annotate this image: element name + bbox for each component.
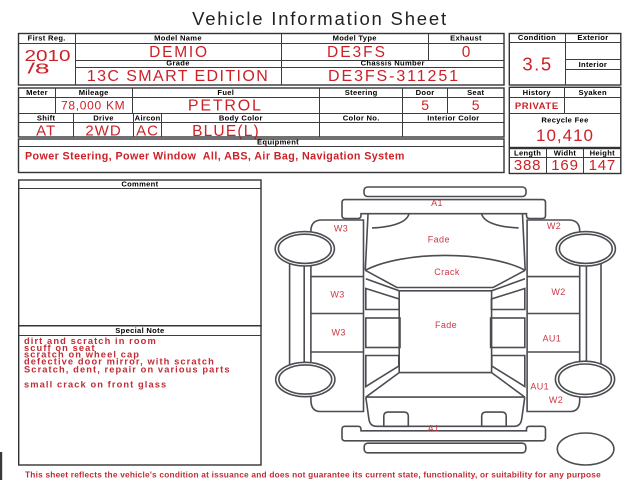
svg-text:169: 169 — [551, 157, 578, 174]
svg-text:W3: W3 — [330, 289, 344, 299]
svg-text:Drive: Drive — [93, 113, 114, 122]
svg-text:Widht: Widht — [554, 148, 577, 157]
svg-text:W2: W2 — [547, 221, 561, 231]
svg-text:AU1: AU1 — [542, 333, 561, 343]
svg-text:Equipment: Equipment — [257, 137, 299, 146]
svg-text:Exhaust: Exhaust — [450, 34, 482, 43]
svg-text:Grade: Grade — [166, 59, 189, 68]
svg-text:Scratch, dent, repair on vario: Scratch, dent, repair on various parts — [24, 364, 231, 374]
svg-text:3.5: 3.5 — [522, 54, 552, 75]
svg-text:A1: A1 — [431, 198, 443, 208]
svg-text:small crack on front glass: small crack on front glass — [24, 380, 167, 390]
svg-text:Comment: Comment — [121, 180, 158, 189]
svg-text:Model Type: Model Type — [333, 34, 377, 43]
svg-text:Door: Door — [416, 88, 435, 97]
svg-text:Crack: Crack — [434, 267, 460, 277]
svg-text:Meter: Meter — [26, 88, 48, 97]
svg-text:Height: Height — [590, 148, 616, 157]
svg-text:Length: Length — [514, 148, 541, 157]
svg-text:Color No.: Color No. — [343, 113, 380, 122]
svg-text:Interior: Interior — [579, 60, 608, 69]
svg-text:AC: AC — [136, 123, 159, 140]
svg-text:Special Note: Special Note — [115, 326, 164, 335]
svg-text:/8: /8 — [28, 62, 50, 78]
svg-text:A1: A1 — [428, 424, 440, 434]
svg-text:Seat: Seat — [467, 88, 484, 97]
svg-text:First Reg.: First Reg. — [28, 34, 66, 43]
svg-text:Condition: Condition — [518, 33, 556, 42]
svg-text:388: 388 — [514, 157, 541, 174]
svg-text:W2: W2 — [549, 395, 563, 405]
svg-text:Mileage: Mileage — [79, 88, 109, 97]
svg-text:Interior Color: Interior Color — [427, 113, 479, 122]
svg-text:Fade: Fade — [428, 235, 450, 245]
svg-text:Vehicle Information Sheet: Vehicle Information Sheet — [192, 8, 448, 29]
svg-text:AT: AT — [36, 123, 56, 140]
svg-text:0: 0 — [462, 44, 471, 61]
svg-text:Steering: Steering — [345, 88, 378, 97]
svg-text:Model Name: Model Name — [154, 34, 202, 43]
svg-text:DE3FS-311251: DE3FS-311251 — [328, 68, 460, 85]
svg-text:This sheet reflects the vehicl: This sheet reflects the vehicle's condit… — [25, 470, 601, 480]
svg-text:PRIVATE: PRIVATE — [515, 101, 559, 112]
svg-text:Recycle Fee: Recycle Fee — [541, 116, 588, 125]
svg-text:2WD: 2WD — [85, 123, 121, 140]
svg-text:13C SMART EDITION: 13C SMART EDITION — [87, 68, 269, 85]
svg-text:Fuel: Fuel — [217, 88, 234, 97]
svg-text:Power Steering, Power Window: Power Steering, Power Window All, ABS, A… — [25, 151, 405, 163]
svg-text:Exterior: Exterior — [577, 33, 608, 42]
svg-text:Fade: Fade — [435, 320, 457, 330]
svg-text:Chassis Number: Chassis Number — [361, 59, 425, 68]
svg-text:147: 147 — [589, 157, 616, 174]
svg-text:Syaken: Syaken — [578, 88, 606, 97]
svg-text:10,410: 10,410 — [536, 126, 594, 145]
svg-text:BLUE(L): BLUE(L) — [192, 123, 260, 140]
svg-text:History: History — [523, 88, 552, 97]
svg-text:AU1: AU1 — [530, 382, 549, 392]
svg-text:W3: W3 — [334, 224, 348, 234]
svg-text:W3: W3 — [332, 327, 346, 337]
svg-text:Body Color: Body Color — [219, 113, 263, 122]
svg-text:PETROL: PETROL — [188, 98, 263, 115]
svg-text:5: 5 — [421, 97, 429, 113]
svg-text:78,000 KM: 78,000 KM — [61, 99, 125, 113]
svg-text:Shift: Shift — [37, 113, 56, 122]
svg-text:W2: W2 — [551, 287, 565, 297]
svg-text:5: 5 — [472, 97, 480, 113]
svg-text:Aircon: Aircon — [135, 113, 161, 122]
